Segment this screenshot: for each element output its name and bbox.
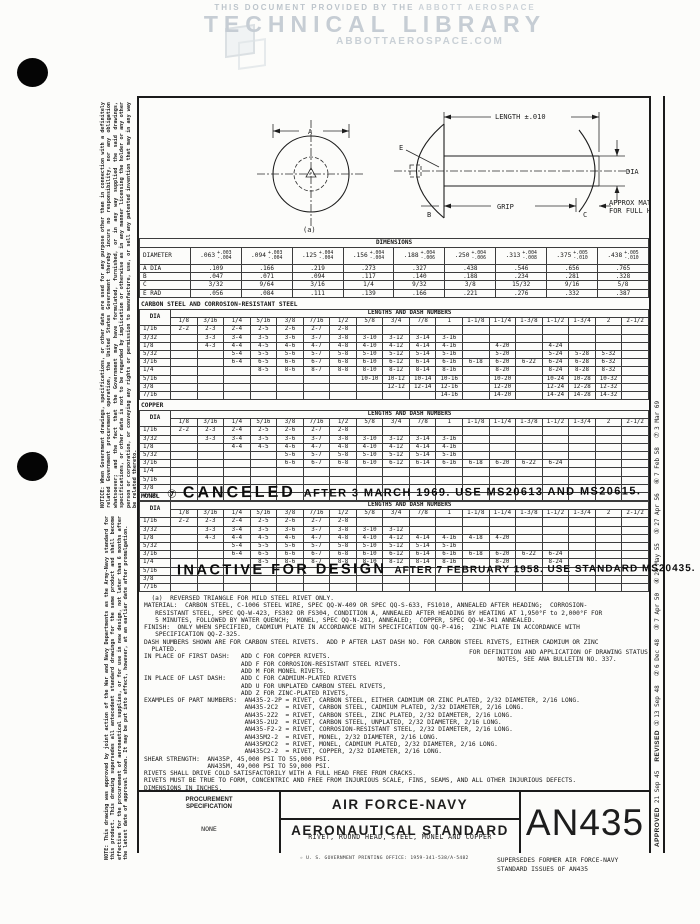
table-cell: 2-1/2 bbox=[622, 318, 649, 326]
table-cell: .047 bbox=[190, 273, 241, 281]
table-cell: 1/4 bbox=[140, 559, 171, 567]
table-cell bbox=[595, 584, 622, 592]
table-cell: 4-8 bbox=[330, 534, 357, 542]
table-cell bbox=[383, 584, 410, 592]
table-cell: 3/32 bbox=[140, 435, 171, 443]
document-frame: A (a) LENGTH ±.010 E bbox=[137, 96, 651, 853]
table-cell bbox=[463, 443, 490, 451]
table-cell bbox=[277, 584, 304, 592]
table-cell bbox=[303, 392, 330, 400]
table-cell bbox=[171, 383, 198, 391]
table-cell: 1/8 bbox=[171, 419, 198, 427]
table-cell bbox=[409, 427, 436, 435]
punch-hole-top bbox=[17, 58, 48, 87]
table-cell: 3-5 bbox=[250, 334, 277, 342]
table-cell: 10-14 bbox=[409, 375, 436, 383]
table-cell: 5/32 bbox=[140, 543, 171, 551]
approx-material-label-2: FOR FULL HEAD bbox=[609, 207, 649, 215]
table-cell bbox=[277, 468, 304, 476]
table-cell: 9/64 bbox=[241, 281, 292, 289]
table-cell: 6-22 bbox=[516, 359, 543, 367]
table-cell: 1-1/2 bbox=[542, 318, 569, 326]
table-cell: 5-7 bbox=[303, 543, 330, 551]
table-cell: .094+.003-.004 bbox=[241, 248, 292, 265]
table-cell bbox=[622, 435, 649, 443]
table-cell bbox=[250, 584, 277, 592]
table-cell: 2-4 bbox=[224, 427, 251, 435]
table-cell: 2-3 bbox=[197, 427, 224, 435]
table-cell bbox=[383, 392, 410, 400]
table-cell: 6-22 bbox=[516, 460, 543, 468]
table-cell bbox=[595, 427, 622, 435]
table-cell bbox=[436, 584, 463, 592]
table-cell: 1-1/2 bbox=[542, 510, 569, 518]
table-cell: 6-24 bbox=[542, 460, 569, 468]
table-cell: 6-4 bbox=[224, 359, 251, 367]
table-cell bbox=[542, 326, 569, 334]
table-cell: 4-24 bbox=[542, 342, 569, 350]
table-cell bbox=[383, 468, 410, 476]
carbon-steel-table: CARBON STEEL AND CORROSION-RESISTANT STE… bbox=[139, 301, 649, 400]
table-cell: 2-1/2 bbox=[622, 419, 649, 427]
canceled-word: CANCELED bbox=[183, 484, 296, 502]
table-cell: .656 bbox=[547, 265, 598, 273]
inactive-stamp: INACTIVE FOR DESIGNAFTER 7 FEBRUARY 1958… bbox=[177, 558, 647, 579]
supersedes-line2: STANDARD ISSUES OF AN435 bbox=[497, 866, 618, 875]
table-cell: LENGTHS AND DASH NUMBERS bbox=[171, 411, 649, 419]
table-cell: 5-28 bbox=[569, 351, 596, 359]
table-cell bbox=[383, 518, 410, 526]
table-cell: 12-28 bbox=[569, 383, 596, 391]
table-cell: 5-6 bbox=[277, 351, 304, 359]
table-cell: 7/8 bbox=[409, 318, 436, 326]
table-cell: 2 bbox=[595, 510, 622, 518]
table-cell bbox=[171, 443, 198, 451]
table-cell bbox=[569, 460, 596, 468]
table-cell: 8-24 bbox=[542, 367, 569, 375]
table-cell: 2-3 bbox=[197, 518, 224, 526]
table-cell: 5/16 bbox=[140, 567, 171, 575]
table-cell: 5-10 bbox=[356, 543, 383, 551]
table-cell: 10-28 bbox=[569, 375, 596, 383]
note-line: AN435-F2-2 = RIVET, CORROSION-RESISTANT … bbox=[144, 726, 646, 733]
table-cell bbox=[463, 326, 490, 334]
table-cell bbox=[622, 334, 649, 342]
table-cell bbox=[622, 543, 649, 551]
table-cell: .166 bbox=[394, 289, 445, 297]
table-cell: 5/16 bbox=[250, 318, 277, 326]
figure-caption: (a) bbox=[303, 226, 316, 234]
table-cell: 5/32 bbox=[140, 351, 171, 359]
table-cell bbox=[622, 367, 649, 375]
table-cell: 3/32 bbox=[140, 334, 171, 342]
rivet-front-view: A (a) bbox=[257, 120, 365, 234]
table-cell bbox=[622, 342, 649, 350]
table-cell: 4-5 bbox=[250, 342, 277, 350]
standard-number: AN435 bbox=[519, 792, 649, 853]
table-cell: 8-5 bbox=[250, 367, 277, 375]
table-cell: 3-14 bbox=[409, 435, 436, 443]
note-line: MATERIAL: CARBON STEEL, C-1006 STEEL WIR… bbox=[144, 602, 646, 609]
table-cell: 6-10 bbox=[356, 551, 383, 559]
table-cell: 5-16 bbox=[436, 452, 463, 460]
table-cell bbox=[303, 375, 330, 383]
table-cell bbox=[516, 326, 543, 334]
c-label: C bbox=[583, 211, 587, 219]
printing-office-note: ☆ U. S. GOVERNMENT PRINTING OFFICE: 1959… bbox=[300, 856, 469, 861]
table-cell: 3-5 bbox=[250, 526, 277, 534]
note-line: DASH NUMBERS SHOWN ARE FOR CARBON STEEL … bbox=[144, 639, 646, 646]
table-cell bbox=[436, 427, 463, 435]
note-line: EXAMPLES OF PART NUMBERS: AN435-2-2P = R… bbox=[144, 697, 646, 704]
table-cell: .056 bbox=[190, 289, 241, 297]
canceled-stamp: ⑦CANCELEDAFTER 3 MARCH 1969. USE MS20613… bbox=[167, 481, 637, 502]
table-cell bbox=[622, 392, 649, 400]
table-cell: 2-1/2 bbox=[622, 510, 649, 518]
table-cell bbox=[489, 526, 516, 534]
table-cell bbox=[595, 460, 622, 468]
table-cell: 5-12 bbox=[383, 543, 410, 551]
table-cell bbox=[622, 518, 649, 526]
table-cell: 3-10 bbox=[356, 526, 383, 534]
table-cell: 8-7 bbox=[303, 367, 330, 375]
table-cell: 3/8 bbox=[277, 419, 304, 427]
table-cell: 5/16 bbox=[140, 375, 171, 383]
table-cell: 6-12 bbox=[383, 460, 410, 468]
table-cell: 4-12 bbox=[383, 443, 410, 451]
table-cell bbox=[542, 584, 569, 592]
table-cell bbox=[171, 476, 198, 484]
table-cell: 4-6 bbox=[277, 443, 304, 451]
note-line: AN435M, 49,000 PSI TO 59,000 PSI. bbox=[144, 763, 646, 770]
revision-history: APPROVED21 Sep 45REVISED①13 Sep 48②6 Dec… bbox=[651, 90, 663, 853]
table-cell: 1/8 bbox=[171, 318, 198, 326]
table-cell: 9/32 bbox=[394, 281, 445, 289]
table-cell bbox=[569, 342, 596, 350]
procurement-label-2: SPECIFICATION bbox=[185, 804, 232, 811]
table-cell bbox=[595, 443, 622, 451]
table-cell bbox=[595, 468, 622, 476]
table-cell: DIA bbox=[140, 411, 171, 427]
table-cell: 3-7 bbox=[303, 435, 330, 443]
table-cell bbox=[171, 526, 198, 534]
table-cell: 3-3 bbox=[197, 435, 224, 443]
table-cell bbox=[622, 534, 649, 542]
table-cell: 2 bbox=[595, 419, 622, 427]
table-cell: 5/16 bbox=[140, 476, 171, 484]
inactive-detail: AFTER 7 FEBRUARY 1958. USE STANDARD MS20… bbox=[394, 563, 695, 576]
table-cell bbox=[171, 375, 198, 383]
table-cell: 14-20 bbox=[489, 392, 516, 400]
table-cell bbox=[463, 351, 490, 359]
table-cell: LENGTHS AND DASH NUMBERS bbox=[171, 502, 649, 510]
table-cell bbox=[197, 443, 224, 451]
table-cell bbox=[489, 334, 516, 342]
table-cell: .765 bbox=[598, 265, 649, 273]
table-cell: .117 bbox=[343, 273, 394, 281]
table-cell: 4-7 bbox=[303, 443, 330, 451]
table-cell: E RAD bbox=[140, 289, 191, 297]
table-cell: 5-24 bbox=[542, 351, 569, 359]
table-cell bbox=[197, 383, 224, 391]
table-cell: 5/32 bbox=[140, 452, 171, 460]
table-cell: 6-32 bbox=[595, 359, 622, 367]
table-cell: 6-22 bbox=[516, 551, 543, 559]
table-cell: 2-8 bbox=[330, 518, 357, 526]
table-cell: 3/32 bbox=[190, 281, 241, 289]
table-cell: .156+.004-.004 bbox=[343, 248, 394, 265]
table-cell bbox=[595, 326, 622, 334]
table-cell: 1-3/8 bbox=[516, 419, 543, 427]
table-cell bbox=[489, 518, 516, 526]
table-cell bbox=[516, 427, 543, 435]
table-cell bbox=[463, 392, 490, 400]
table-cell: 4-4 bbox=[224, 534, 251, 542]
table-cell: 2-2 bbox=[171, 427, 198, 435]
table-cell bbox=[622, 460, 649, 468]
table-cell bbox=[516, 468, 543, 476]
table-cell: 7/16 bbox=[303, 510, 330, 518]
table-cell: 1/4 bbox=[343, 281, 394, 289]
table-cell bbox=[516, 518, 543, 526]
table-cell: 1-3/4 bbox=[569, 419, 596, 427]
table-cell: 7/8 bbox=[409, 419, 436, 427]
table-cell: B bbox=[140, 273, 191, 281]
standard-title: AIR FORCE-NAVY AERONAUTICAL STANDARD bbox=[281, 792, 519, 820]
table-cell bbox=[224, 392, 251, 400]
table-cell bbox=[622, 351, 649, 359]
inactive-word: INACTIVE FOR DESIGN bbox=[177, 561, 387, 578]
note-line: AN435M2C2 = RIVET, MONEL, CADMIUM PLATED… bbox=[144, 741, 646, 748]
table-cell: .063+.003-.004 bbox=[190, 248, 241, 265]
table-cell: 14-24 bbox=[542, 392, 569, 400]
table-cell: 3/4 bbox=[383, 419, 410, 427]
table-cell bbox=[356, 392, 383, 400]
table-cell: DIAMETER bbox=[140, 248, 191, 265]
table-cell: 4-4 bbox=[224, 342, 251, 350]
table-cell: 2-4 bbox=[224, 326, 251, 334]
table-cell: 4-7 bbox=[303, 342, 330, 350]
table-cell: 6-10 bbox=[356, 460, 383, 468]
table-cell bbox=[595, 342, 622, 350]
table-cell bbox=[569, 543, 596, 551]
table-cell: 5-8 bbox=[330, 452, 357, 460]
table-cell: 5-32 bbox=[595, 351, 622, 359]
table-cell bbox=[516, 584, 543, 592]
table-cell: 14-28 bbox=[569, 392, 596, 400]
table-cell bbox=[463, 584, 490, 592]
table-cell: 7/16 bbox=[140, 392, 171, 400]
table-cell: 6-18 bbox=[463, 359, 490, 367]
table-cell bbox=[622, 383, 649, 391]
table-cell: 1-1/4 bbox=[489, 419, 516, 427]
table-cell bbox=[542, 427, 569, 435]
table-cell: 6-20 bbox=[489, 551, 516, 559]
table-cell bbox=[516, 383, 543, 391]
table-cell: .139 bbox=[343, 289, 394, 297]
table-cell: 6-4 bbox=[224, 551, 251, 559]
table-cell bbox=[516, 534, 543, 542]
table-cell bbox=[224, 452, 251, 460]
table-cell bbox=[595, 435, 622, 443]
table-cell bbox=[516, 375, 543, 383]
table-cell: 2 bbox=[595, 318, 622, 326]
table-cell: 1 bbox=[436, 419, 463, 427]
table-cell: 2-8 bbox=[330, 427, 357, 435]
approx-material-label-1: APPROX MATERIAL bbox=[609, 199, 649, 207]
table-cell: 1-3/4 bbox=[569, 510, 596, 518]
table-cell bbox=[463, 342, 490, 350]
table-cell bbox=[436, 526, 463, 534]
table-cell: 12-12 bbox=[383, 383, 410, 391]
table-cell: 3-12 bbox=[383, 334, 410, 342]
table-cell bbox=[595, 534, 622, 542]
table-cell: .140 bbox=[394, 273, 445, 281]
table-cell: 1/4 bbox=[224, 510, 251, 518]
table-cell bbox=[516, 351, 543, 359]
table-cell bbox=[197, 452, 224, 460]
table-cell bbox=[171, 435, 198, 443]
table-cell: 5-7 bbox=[303, 452, 330, 460]
table-cell bbox=[622, 526, 649, 534]
table-cell: 7/16 bbox=[303, 419, 330, 427]
table-cell: 5-7 bbox=[303, 351, 330, 359]
table-cell: 6-7 bbox=[303, 460, 330, 468]
e-label: E bbox=[399, 144, 403, 152]
table-cell: 2-7 bbox=[303, 427, 330, 435]
table-cell: 4-6 bbox=[277, 534, 304, 542]
table-cell bbox=[622, 359, 649, 367]
table-cell: 2-6 bbox=[277, 326, 304, 334]
table-cell bbox=[463, 543, 490, 551]
table-cell bbox=[622, 443, 649, 451]
table-cell: 10-12 bbox=[383, 375, 410, 383]
table-cell bbox=[463, 435, 490, 443]
table-cell: 3-8 bbox=[330, 435, 357, 443]
table-cell: 5-5 bbox=[250, 543, 277, 551]
notice-vertical-text: NOTICE: When Government drawings, specif… bbox=[100, 102, 138, 508]
table-cell bbox=[516, 392, 543, 400]
table-cell: 4-5 bbox=[250, 443, 277, 451]
table-cell bbox=[171, 460, 198, 468]
table-cell: .328 bbox=[598, 273, 649, 281]
table-cell: 3/16 bbox=[140, 460, 171, 468]
table-cell: 6-18 bbox=[463, 460, 490, 468]
note-line: RIVETS MUST BE TRUE TO FORM, CONCENTRIC … bbox=[144, 777, 646, 784]
table-cell bbox=[489, 584, 516, 592]
table-cell: 5-14 bbox=[409, 543, 436, 551]
table-cell bbox=[463, 383, 490, 391]
table-cell bbox=[569, 518, 596, 526]
table-cell bbox=[224, 367, 251, 375]
table-cell bbox=[489, 326, 516, 334]
table-cell: 5-6 bbox=[277, 543, 304, 551]
table-cell: 6-5 bbox=[250, 551, 277, 559]
note-line: AN435C2-2 = RIVET, COPPER, 2/32 DIAMETER… bbox=[144, 748, 646, 755]
table-cell bbox=[463, 518, 490, 526]
procurement-label-1: PROCUREMENT bbox=[185, 797, 232, 804]
table-cell: .250+.004-.006 bbox=[445, 248, 496, 265]
note-line: IN PLACE OF LAST DASH: ADD C FOR CADMIUM… bbox=[144, 675, 646, 682]
table-cell bbox=[463, 526, 490, 534]
table-cell bbox=[356, 383, 383, 391]
table-cell: 5/8 bbox=[356, 419, 383, 427]
note-line: (a) REVERSED TRIANGLE FOR MILD STEEL RIV… bbox=[144, 595, 646, 602]
table-cell: 3/16 bbox=[292, 281, 343, 289]
table-cell: .188 bbox=[445, 273, 496, 281]
table-cell: 2-5 bbox=[250, 427, 277, 435]
table-cell: 3/8 bbox=[140, 383, 171, 391]
table-cell bbox=[595, 543, 622, 551]
table-cell bbox=[197, 367, 224, 375]
table-cell: 3/16 bbox=[197, 510, 224, 518]
table-cell: 1-1/4 bbox=[489, 510, 516, 518]
watermark: THIS DOCUMENT PROVIDED BY THE ABBOTT AER… bbox=[140, 3, 610, 47]
table-cell bbox=[622, 468, 649, 476]
table-cell bbox=[542, 435, 569, 443]
table-cell: 12-14 bbox=[409, 383, 436, 391]
grip-label: GRIP bbox=[497, 203, 514, 211]
table-cell: 3/16 bbox=[197, 419, 224, 427]
table-cell: .166 bbox=[241, 265, 292, 273]
table-cell: 6-24 bbox=[542, 551, 569, 559]
table-cell bbox=[595, 518, 622, 526]
table-cell bbox=[569, 468, 596, 476]
supersedes-note: SUPERSEDES FORMER AIR FORCE-NAVY STANDAR… bbox=[497, 857, 618, 874]
table-cell: .071 bbox=[241, 273, 292, 281]
table-cell: 15/32 bbox=[496, 281, 547, 289]
table-cell: 2-7 bbox=[303, 326, 330, 334]
table-cell bbox=[224, 375, 251, 383]
table-cell bbox=[542, 518, 569, 526]
table-cell: 3/8 bbox=[277, 510, 304, 518]
part-title: RIVET, ROUND HEAD, STEEL, MONEL AND COPP… bbox=[281, 820, 519, 853]
table-cell: 4-10 bbox=[356, 534, 383, 542]
table-cell bbox=[542, 452, 569, 460]
dim-a-label: A bbox=[308, 128, 313, 136]
table-cell bbox=[330, 584, 357, 592]
table-cell: .332 bbox=[547, 289, 598, 297]
table-cell: 5-16 bbox=[436, 351, 463, 359]
dia-label: DIA bbox=[626, 168, 639, 176]
table-cell: 4-8 bbox=[330, 342, 357, 350]
table-cell bbox=[516, 452, 543, 460]
table-cell: 8-10 bbox=[356, 367, 383, 375]
table-cell: 3-12 bbox=[383, 435, 410, 443]
table-cell: .109 bbox=[190, 265, 241, 273]
table-cell: 1-1/4 bbox=[489, 318, 516, 326]
table-cell: 4-20 bbox=[489, 534, 516, 542]
table-cell bbox=[436, 326, 463, 334]
table-cell bbox=[250, 452, 277, 460]
table-cell bbox=[197, 476, 224, 484]
procurement-spec-cell: PROCUREMENT SPECIFICATION NONE bbox=[139, 792, 281, 853]
table-cell bbox=[463, 334, 490, 342]
table-cell: 3/16 bbox=[140, 551, 171, 559]
table-cell bbox=[516, 435, 543, 443]
table-cell: 2-5 bbox=[250, 326, 277, 334]
rivet-side-view: LENGTH ±.010 E DIA GRIP B C bbox=[394, 112, 649, 219]
table-cell bbox=[569, 435, 596, 443]
table-cell bbox=[569, 452, 596, 460]
table-cell bbox=[595, 526, 622, 534]
table-cell: 6-16 bbox=[436, 551, 463, 559]
table-cell bbox=[463, 375, 490, 383]
table-cell: 2-6 bbox=[277, 518, 304, 526]
table-cell: 2-2 bbox=[171, 518, 198, 526]
table-cell: 5-10 bbox=[356, 452, 383, 460]
table-cell: 5-4 bbox=[224, 543, 251, 551]
